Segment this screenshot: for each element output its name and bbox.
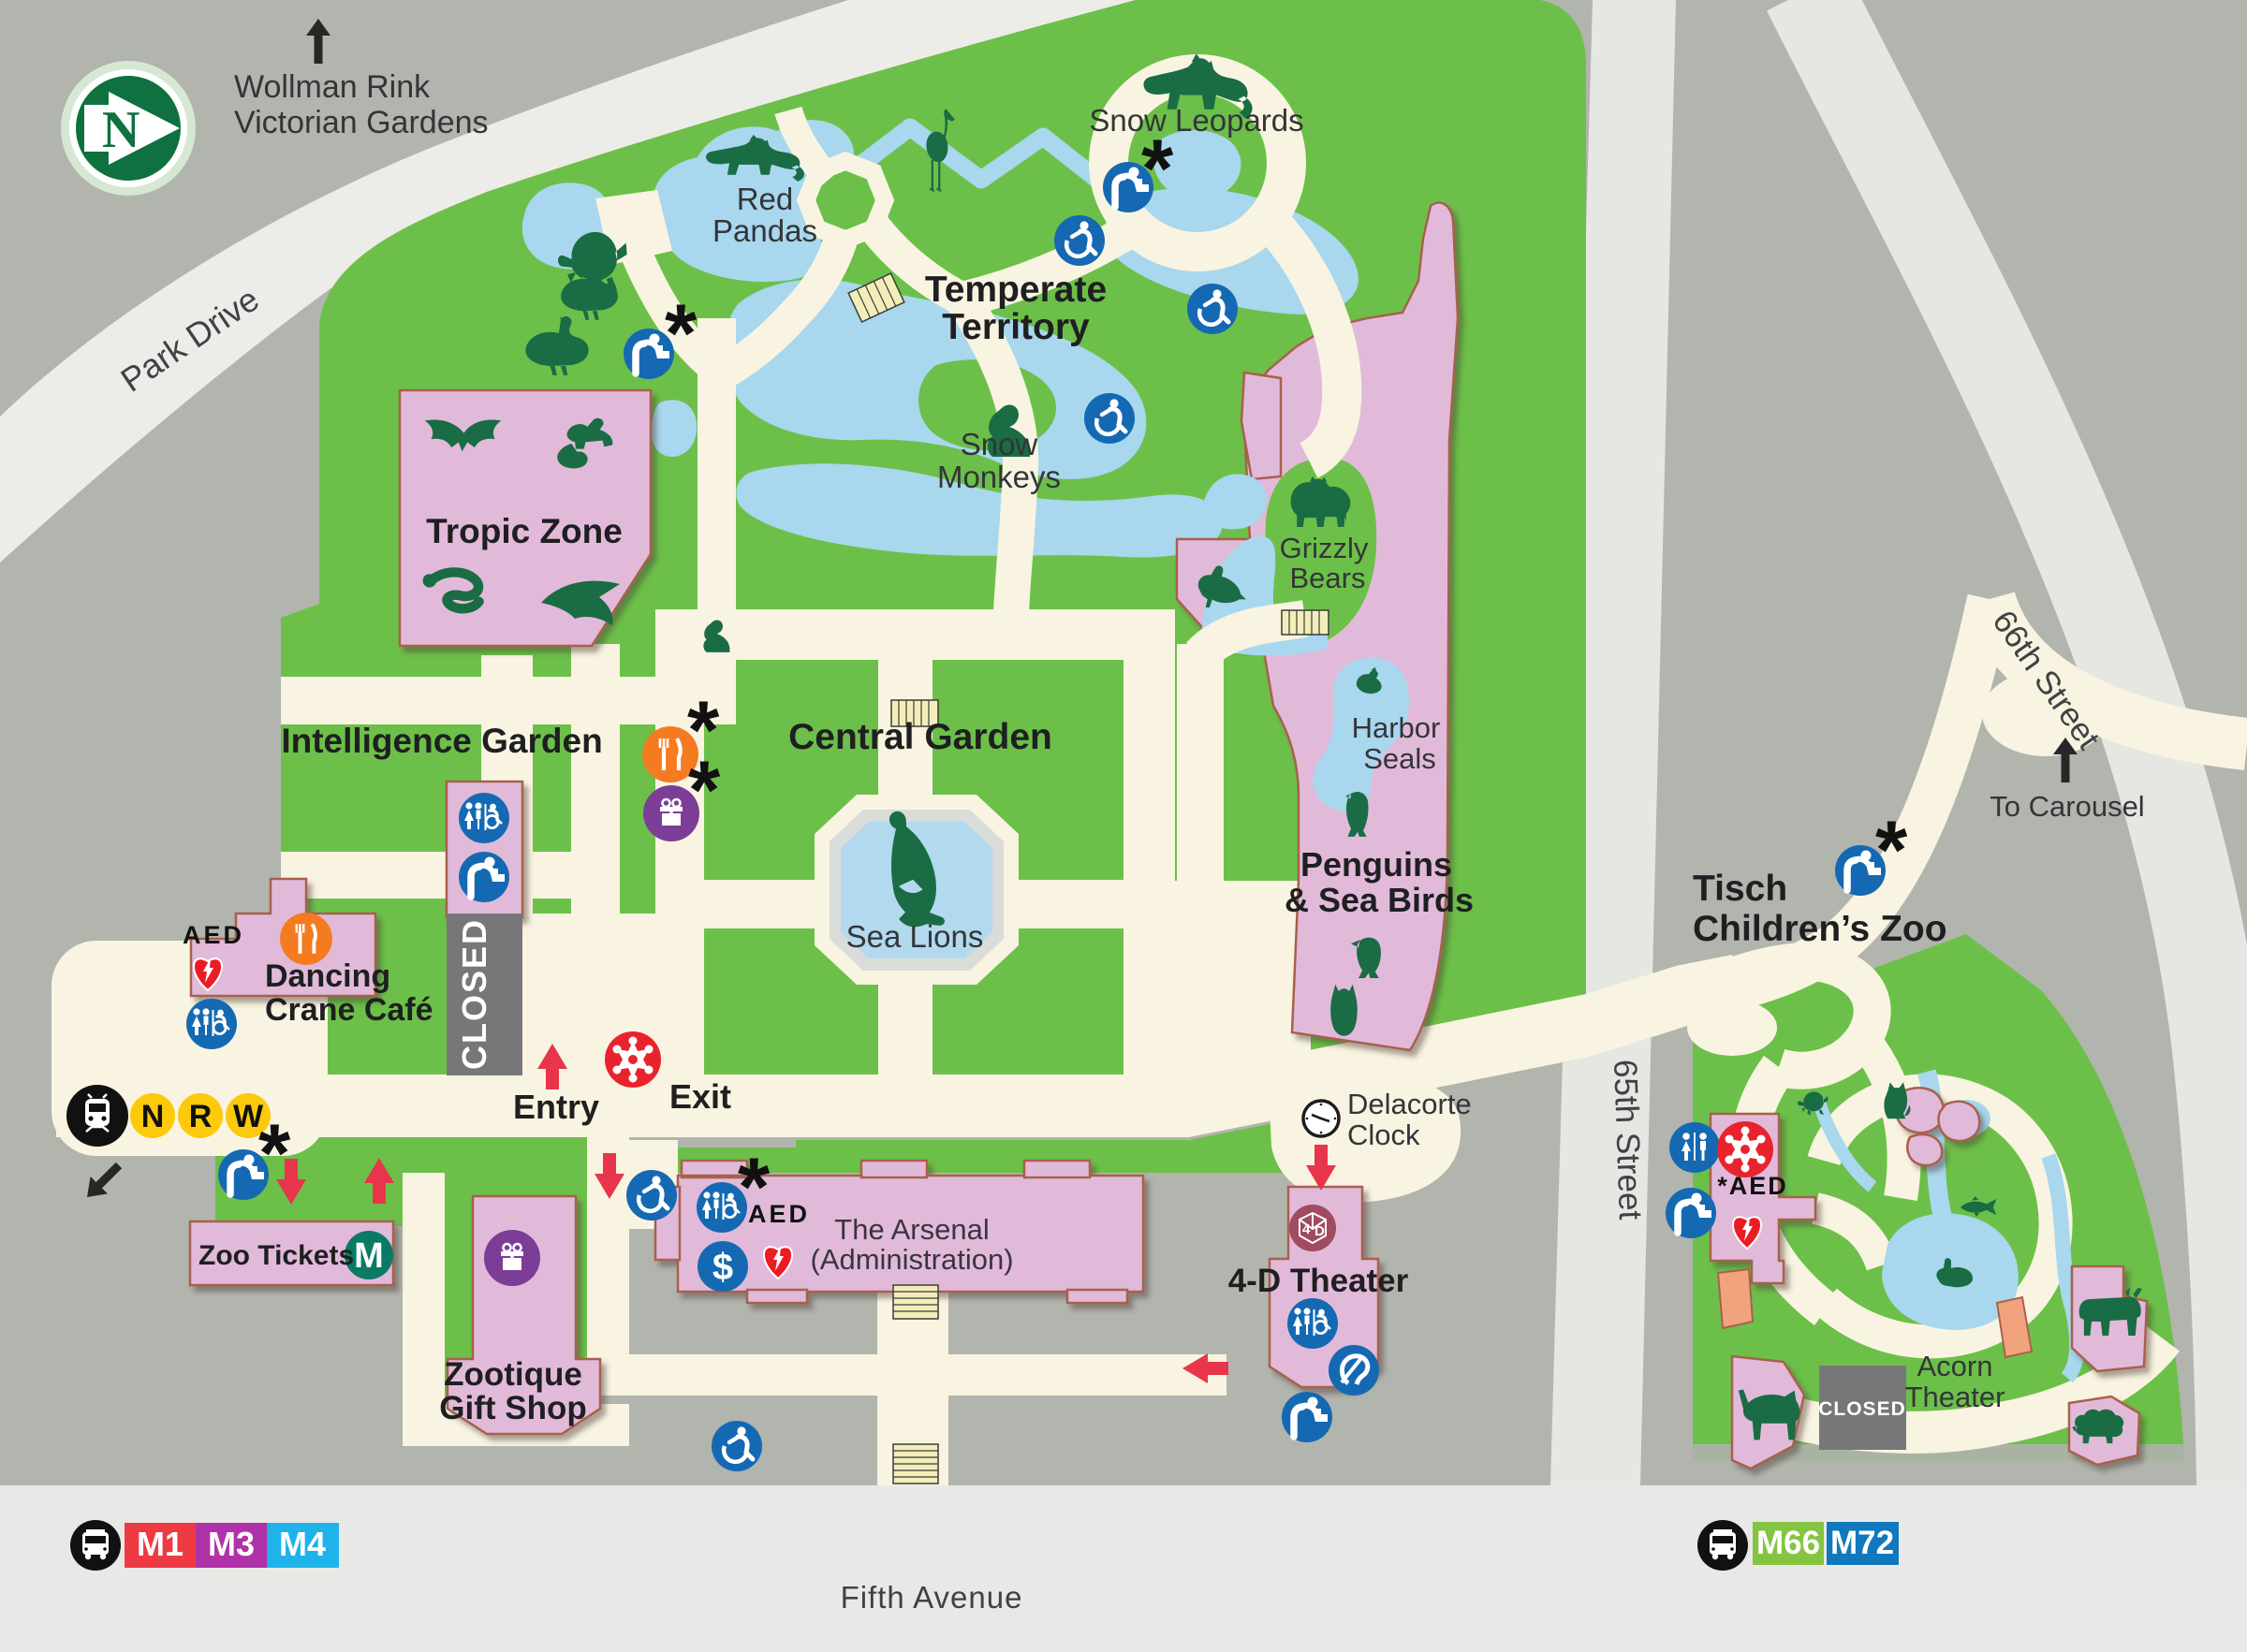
- svg-text:M1: M1: [137, 1525, 184, 1563]
- svg-text:Snow Leopards: Snow Leopards: [1089, 103, 1303, 138]
- svg-text:Exit: Exit: [669, 1077, 731, 1116]
- svg-text:Children’s Zoo: Children’s Zoo: [1693, 909, 1947, 949]
- svg-text:M72: M72: [1830, 1525, 1894, 1561]
- svg-text:Monkeys: Monkeys: [937, 460, 1061, 494]
- svg-text:Penguins: Penguins: [1300, 845, 1452, 884]
- svg-text:Harbor: Harbor: [1352, 711, 1441, 744]
- svg-text:Theater: Theater: [1905, 1381, 2005, 1413]
- svg-text:Delacorte: Delacorte: [1347, 1088, 1472, 1120]
- svg-text:Central Garden: Central Garden: [788, 717, 1052, 757]
- svg-text:The Arsenal: The Arsenal: [834, 1213, 989, 1246]
- svg-text:M66: M66: [1756, 1525, 1820, 1561]
- svg-text:Tisch: Tisch: [1693, 869, 1787, 909]
- svg-text:Grizzly: Grizzly: [1280, 532, 1369, 564]
- svg-text:*: *: [665, 286, 698, 379]
- svg-text:AED: AED: [183, 921, 244, 949]
- svg-text:*: *: [688, 743, 721, 836]
- svg-text:To Carousel: To Carousel: [1990, 790, 2144, 823]
- svg-text:Clock: Clock: [1347, 1118, 1420, 1151]
- svg-text:Red: Red: [737, 182, 794, 216]
- svg-text:Crane Café: Crane Café: [265, 992, 433, 1028]
- svg-text:R: R: [189, 1099, 213, 1134]
- svg-text:Tropic Zone: Tropic Zone: [426, 512, 623, 550]
- svg-text:CLOSED: CLOSED: [1818, 1398, 1906, 1420]
- svg-text:Acorn: Acorn: [1917, 1350, 1993, 1382]
- svg-text:Victorian Gardens: Victorian Gardens: [234, 105, 489, 140]
- svg-text:4-D Theater: 4-D Theater: [1228, 1263, 1409, 1299]
- svg-text:M3: M3: [208, 1525, 255, 1563]
- svg-text:Snow: Snow: [961, 427, 1038, 461]
- svg-text:*AED: *AED: [1717, 1172, 1788, 1200]
- svg-text:N: N: [141, 1099, 165, 1134]
- svg-text:Gift Shop: Gift Shop: [439, 1390, 586, 1426]
- svg-text:AED: AED: [748, 1200, 810, 1228]
- svg-text:Wollman Rink: Wollman Rink: [234, 69, 431, 105]
- svg-text:Territory: Territory: [942, 307, 1090, 347]
- svg-text:Intelligence Garden: Intelligence Garden: [281, 722, 602, 760]
- svg-text:Dancing: Dancing: [265, 958, 390, 994]
- svg-text:Fifth Avenue: Fifth Avenue: [841, 1580, 1023, 1615]
- svg-text:Bears: Bears: [1290, 562, 1366, 594]
- svg-text:(Administration): (Administration): [810, 1243, 1013, 1276]
- svg-text:Pandas: Pandas: [712, 213, 817, 248]
- svg-text:N: N: [102, 101, 140, 159]
- svg-text:Temperate: Temperate: [925, 270, 1107, 310]
- svg-text:CLOSED: CLOSED: [455, 918, 493, 1070]
- svg-text:65th Street: 65th Street: [1607, 1059, 1649, 1221]
- svg-text:Seals: Seals: [1363, 742, 1436, 775]
- svg-text:Zoo Tickets: Zoo Tickets: [198, 1240, 354, 1271]
- svg-text:Zootique: Zootique: [444, 1356, 582, 1393]
- svg-text:Entry: Entry: [513, 1088, 599, 1126]
- svg-text:Sea Lions: Sea Lions: [846, 919, 984, 954]
- svg-text:& Sea Birds: & Sea Birds: [1285, 881, 1474, 919]
- svg-text:*: *: [1875, 803, 1908, 896]
- svg-text:M4: M4: [279, 1525, 326, 1563]
